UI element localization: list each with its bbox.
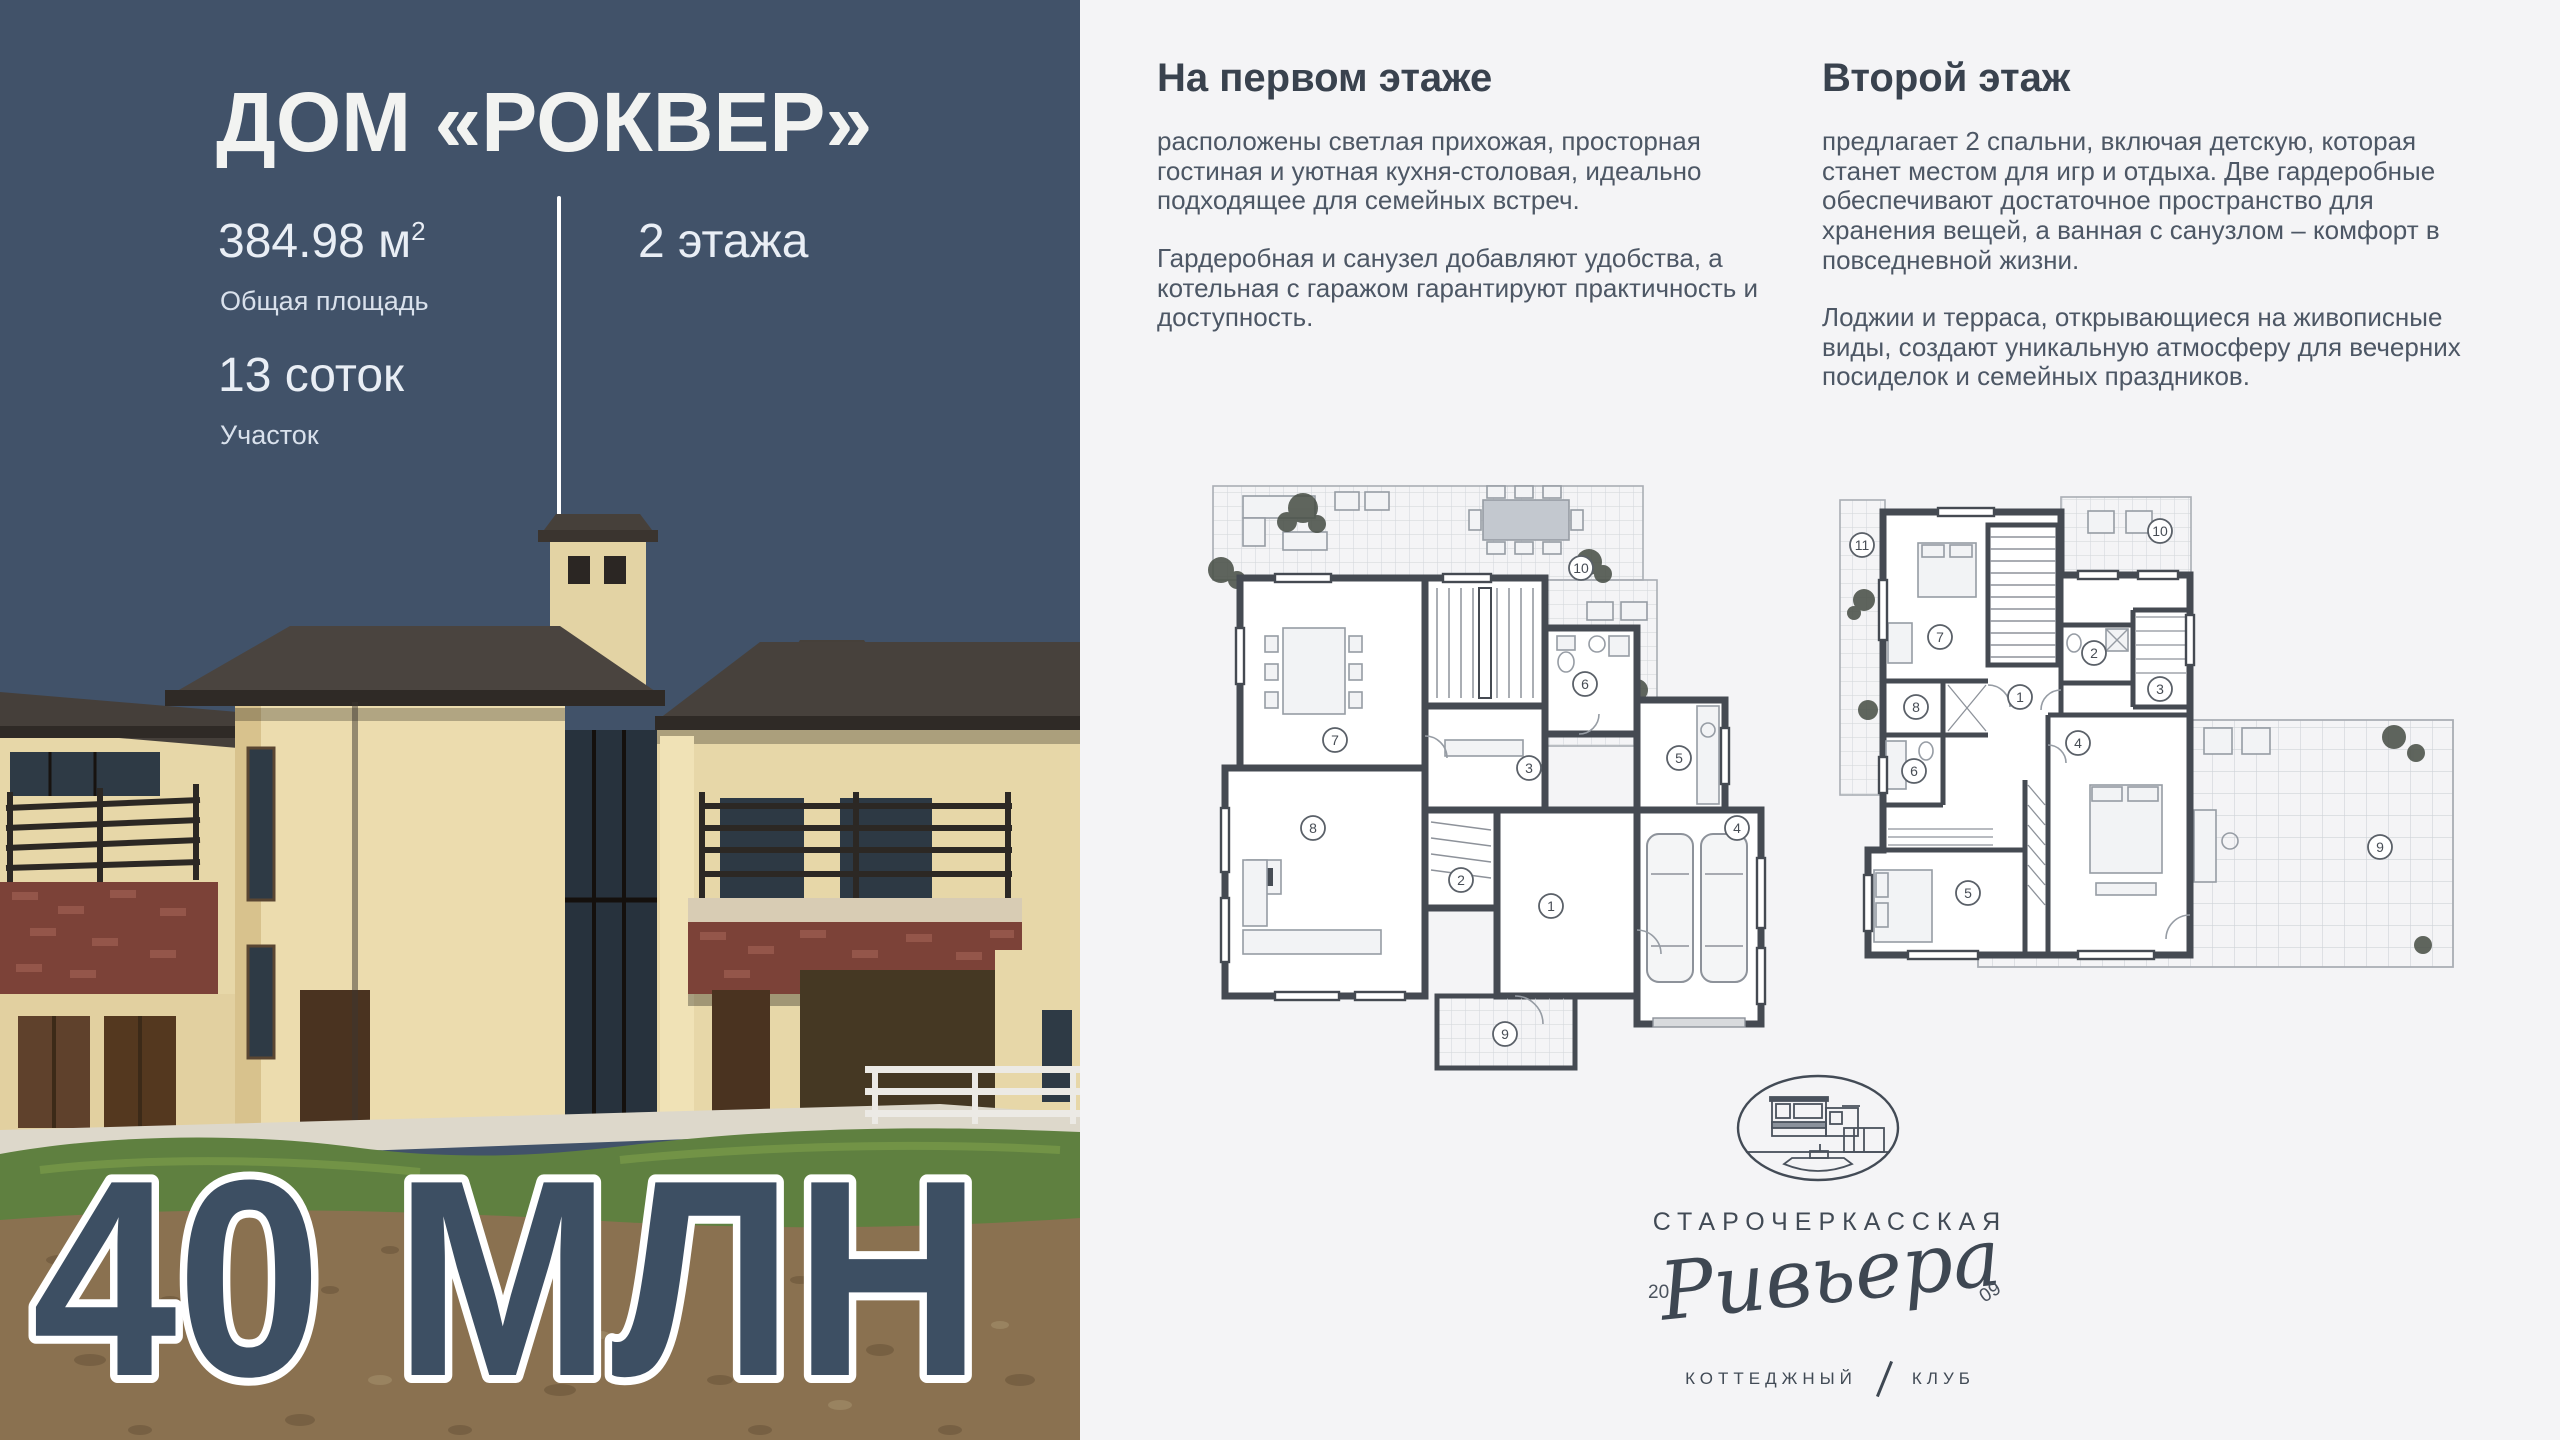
room-number: 1 bbox=[1547, 898, 1555, 914]
logo-club-left: КОТТЕДЖНЫЙ bbox=[1685, 1369, 1857, 1389]
room-number: 6 bbox=[1581, 676, 1589, 692]
room-number: 5 bbox=[1675, 750, 1683, 766]
price-text: 40 МЛН bbox=[32, 1123, 982, 1435]
room-number: 3 bbox=[1525, 760, 1533, 776]
room-number: 9 bbox=[2376, 839, 2384, 855]
total-area-value: 384.98 м2 bbox=[218, 214, 426, 269]
logo-boat-icon bbox=[1784, 1144, 1852, 1171]
script-tail-stroke bbox=[1876, 1361, 1893, 1397]
room-number: 1 bbox=[2016, 689, 2024, 705]
room-number: 8 bbox=[1912, 699, 1920, 715]
house-left-wing bbox=[0, 692, 238, 1136]
second-floor-heading: Второй этаж bbox=[1822, 56, 2490, 101]
first-floor-heading: На первом этаже bbox=[1157, 56, 1812, 101]
floor-plan-first: 1 2 3 4 5 6 7 8 9 10 bbox=[1185, 478, 1777, 1090]
room-number: 7 bbox=[1331, 732, 1339, 748]
second-floor-paragraph-2: Лоджии и терраса, открывающиеся на живоп… bbox=[1822, 303, 2490, 392]
logo-house-icon bbox=[1770, 1097, 1884, 1152]
room-number: 5 bbox=[1964, 885, 1972, 901]
room-number: 10 bbox=[2152, 523, 2168, 539]
first-floor-paragraph-2: Гардеробная и санузел добавляют удобства… bbox=[1157, 244, 1812, 333]
total-area-label: Общая площадь bbox=[220, 286, 429, 317]
room-number: 3 bbox=[2156, 681, 2164, 697]
room-number: 10 bbox=[1573, 560, 1589, 576]
floors-value: 2 этажа bbox=[638, 214, 808, 269]
price-overlay: 40 МЛН bbox=[0, 1075, 1080, 1440]
room-number: 2 bbox=[2090, 645, 2098, 661]
logo-club-right: КЛУБ bbox=[1912, 1369, 1975, 1389]
total-area-number: 384.98 м bbox=[218, 215, 411, 268]
second-floor-paragraph-1: предлагает 2 спальни, включая детскую, к… bbox=[1822, 127, 2490, 275]
room-number: 4 bbox=[2074, 735, 2082, 751]
house-right-wing bbox=[655, 642, 1080, 1138]
right-panel: На первом этаже расположены светлая прих… bbox=[1080, 0, 2560, 1440]
first-floor-section: На первом этаже расположены светлая прих… bbox=[1157, 56, 1812, 361]
presentation-page: ДОМ «РОКВЕР» 384.98 м2 Общая площадь 2 э… bbox=[0, 0, 2560, 1440]
room-number: 7 bbox=[1936, 629, 1944, 645]
left-panel: ДОМ «РОКВЕР» 384.98 м2 Общая площадь 2 э… bbox=[0, 0, 1080, 1440]
room-number: 6 bbox=[1910, 763, 1918, 779]
room-number: 11 bbox=[1855, 537, 1870, 553]
page-title: ДОМ «РОКВЕР» bbox=[216, 74, 872, 171]
first-floor-paragraph-1: расположены светлая прихожая, просторная… bbox=[1157, 127, 1812, 216]
room-number: 4 bbox=[1733, 820, 1741, 836]
plot-value: 13 соток bbox=[218, 348, 404, 403]
room-number: 9 bbox=[1501, 1026, 1509, 1042]
floor-plan-second: 1 2 3 4 5 6 7 8 9 10 11 bbox=[1838, 485, 2520, 1042]
logo-club-line: КОТТЕДЖНЫЙ КЛУБ bbox=[1610, 1360, 2050, 1398]
room-number: 2 bbox=[1457, 872, 1465, 888]
second-floor-section: Второй этаж предлагает 2 спальни, включа… bbox=[1822, 56, 2490, 420]
logo-emblem bbox=[1732, 1070, 1904, 1188]
room-number: 8 bbox=[1309, 820, 1317, 836]
logo-year-left: 20 bbox=[1648, 1282, 1669, 1304]
total-area-sup: 2 bbox=[411, 216, 425, 246]
